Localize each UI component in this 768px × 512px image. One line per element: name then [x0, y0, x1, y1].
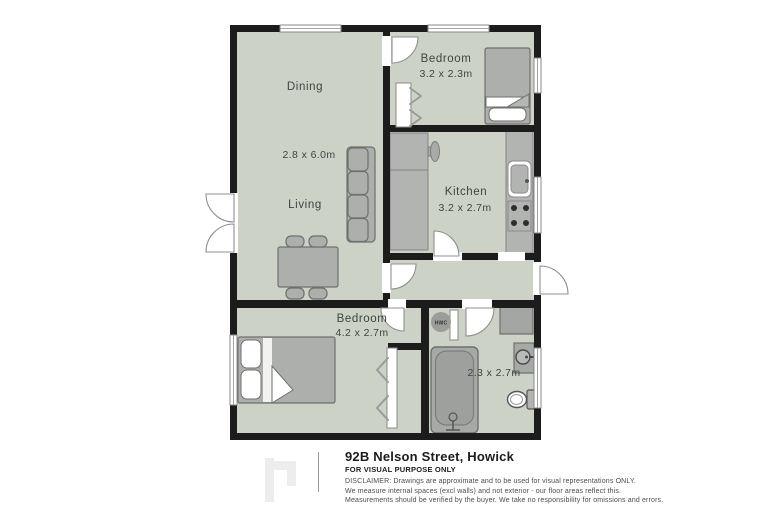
floorplan-drawing: HWC Dining 2.8 x 6.0m Living Bedroom 3.2… [190, 8, 570, 450]
single-bed [485, 48, 530, 124]
bedroom-small-label: Bedroom [421, 53, 472, 65]
living-label: Living [288, 199, 322, 211]
floorplan-page: HWC Dining 2.8 x 6.0m Living Bedroom 3.2… [0, 0, 768, 512]
sink-icon [508, 161, 531, 197]
property-address: 92B Nelson Street, Howick [345, 450, 685, 463]
agency-logo-icon [262, 452, 302, 504]
kitchen-counter [506, 130, 533, 253]
disclaimer-line-2: We measure internal spaces (excl walls) … [345, 487, 685, 497]
footer-divider [318, 452, 319, 492]
disclaimer-line-1: DISCLAIMER: Drawings are approximate and… [345, 477, 685, 487]
visual-purpose-note: FOR VISUAL PURPOSE ONLY [345, 465, 685, 474]
toilet-icon [508, 390, 536, 409]
double-bed [238, 337, 335, 403]
living-dims: 2.8 x 6.0m [282, 149, 335, 161]
hwc-label: HWC [435, 321, 448, 327]
bathroom-dims: 2.3 x 2.7m [467, 367, 520, 379]
bathtub [431, 347, 478, 433]
bedroom-main-label: Bedroom [337, 313, 388, 325]
kitchen-label: Kitchen [445, 186, 488, 198]
sofa [347, 147, 375, 242]
dining-label: Dining [287, 81, 323, 93]
footer-text-block: 92B Nelson Street, Howick FOR VISUAL PUR… [345, 450, 685, 506]
footer: 92B Nelson Street, Howick FOR VISUAL PUR… [0, 448, 768, 512]
kitchen-dims: 3.2 x 2.7m [438, 202, 491, 214]
bedroom-small-dims: 3.2 x 2.3m [419, 68, 472, 80]
disclaimer-line-3: Measurements should be verified by the b… [345, 496, 685, 506]
front-door-arc [540, 266, 568, 294]
disclaimer: DISCLAIMER: Drawings are approximate and… [345, 477, 685, 506]
bedroom-main-dims: 4.2 x 2.7m [335, 327, 388, 339]
entry-double-door-arc-bottom [206, 224, 234, 252]
entry-double-door-arc-top [206, 194, 234, 222]
